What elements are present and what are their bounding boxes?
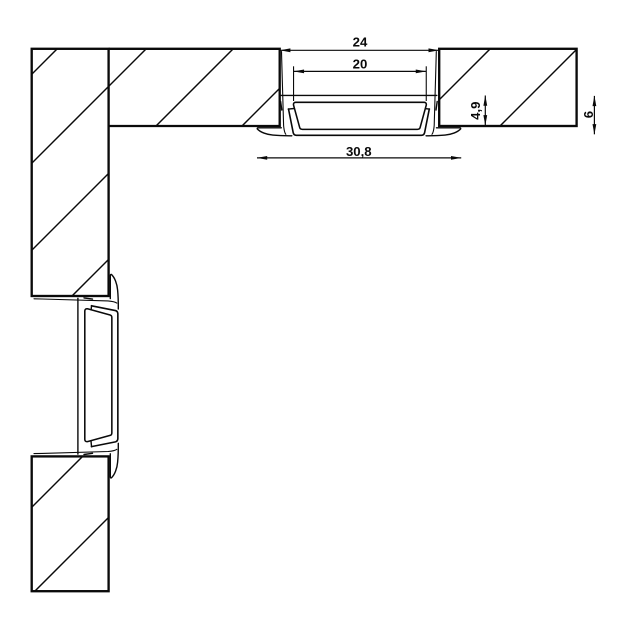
svg-text:6: 6 xyxy=(581,111,596,118)
svg-text:20: 20 xyxy=(353,57,368,72)
svg-text:30,8: 30,8 xyxy=(346,144,372,159)
svg-text:4,9: 4,9 xyxy=(468,102,483,120)
svg-text:24: 24 xyxy=(353,34,368,49)
